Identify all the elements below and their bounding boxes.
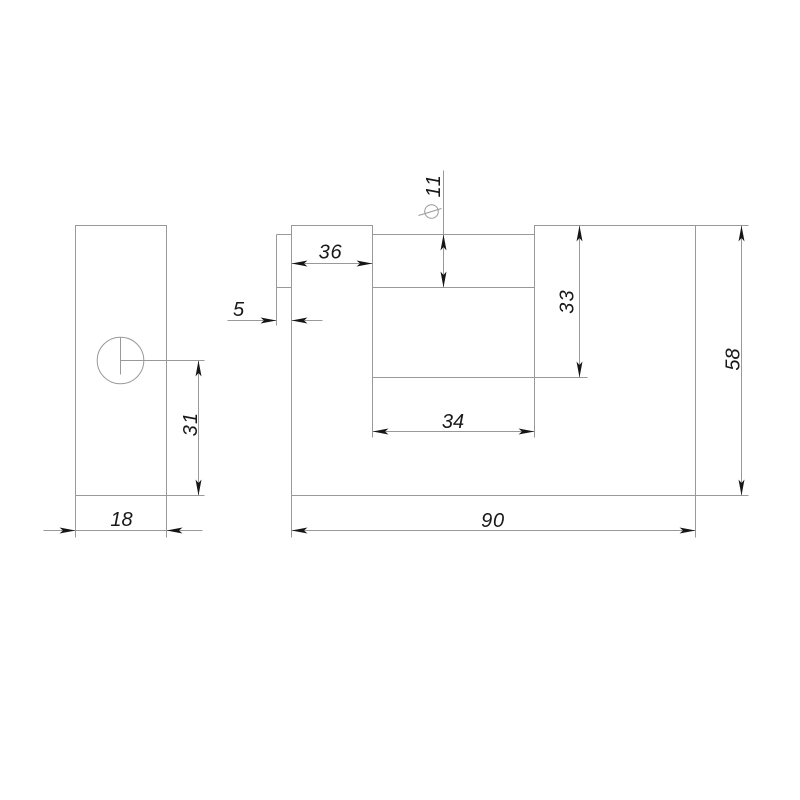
- svg-text:36: 36: [319, 242, 343, 264]
- svg-text:11: 11: [423, 174, 445, 198]
- svg-text:90: 90: [481, 510, 505, 532]
- svg-text:18: 18: [110, 509, 132, 531]
- svg-text:31: 31: [180, 412, 202, 437]
- svg-text:58: 58: [723, 348, 745, 370]
- svg-text:5: 5: [233, 299, 245, 321]
- svg-text:34: 34: [442, 411, 464, 433]
- svg-text:33: 33: [557, 289, 579, 314]
